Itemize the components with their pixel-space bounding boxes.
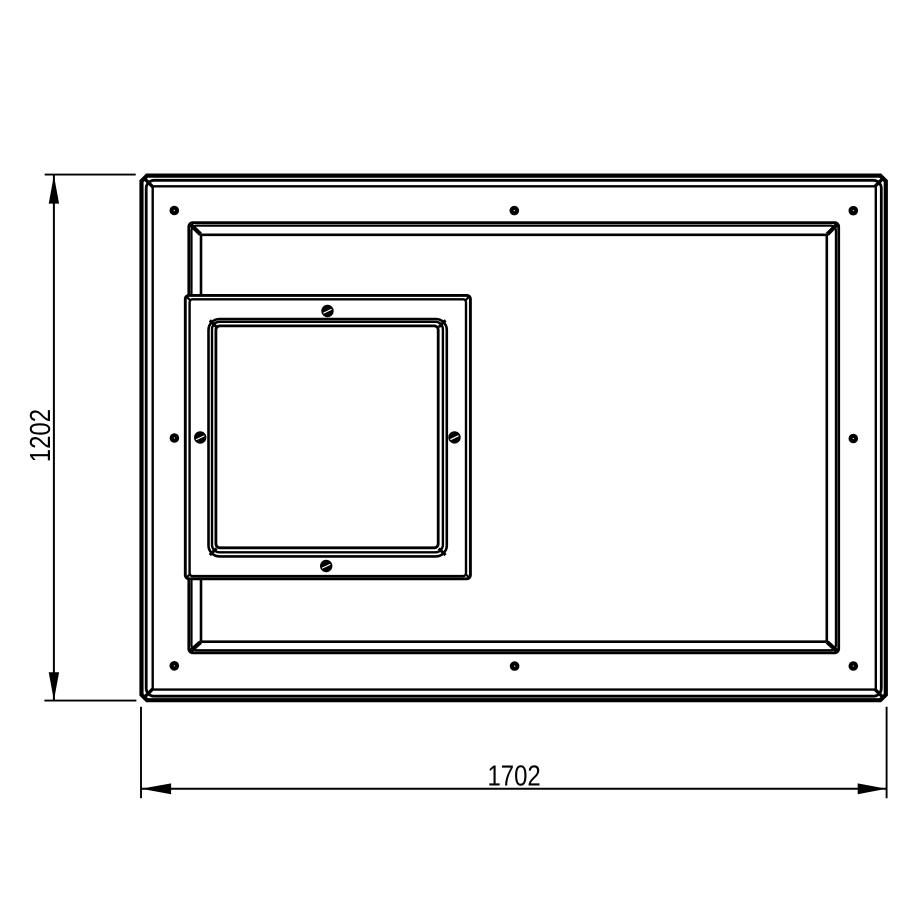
- svg-text:1702: 1702: [487, 759, 540, 791]
- svg-text:1202: 1202: [24, 409, 56, 462]
